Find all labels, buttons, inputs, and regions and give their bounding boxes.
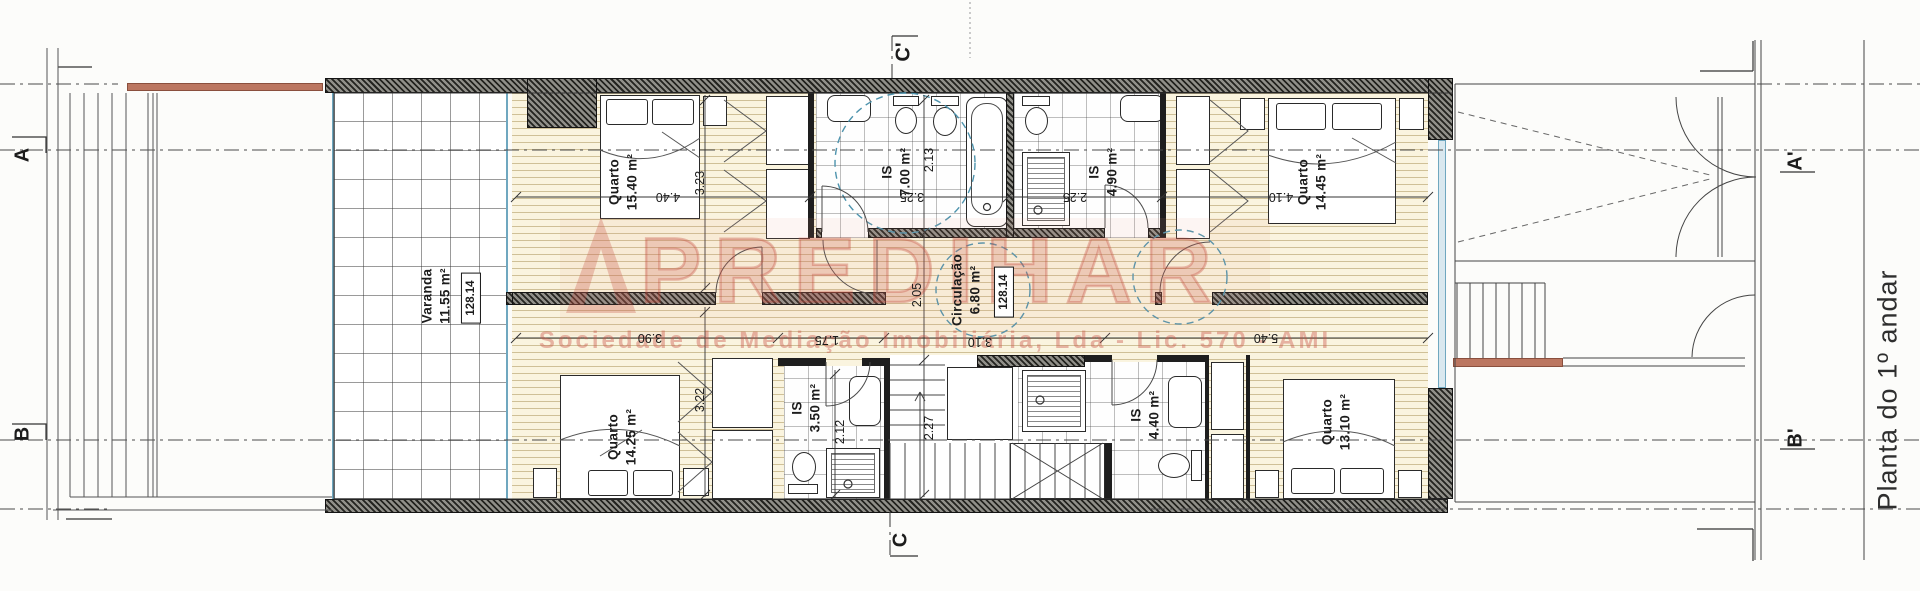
shower <box>1022 370 1086 432</box>
wardrobe <box>1176 169 1210 239</box>
railing-bar <box>1453 358 1563 367</box>
room-area: 14.25 m² <box>623 409 638 465</box>
dim-circulacao-w2: 1.75 <box>815 333 839 347</box>
section-marker-a: A <box>12 148 35 162</box>
washbasin <box>827 95 871 122</box>
wall-partition <box>1085 355 1112 362</box>
room-area: 15.40 m² <box>624 154 639 210</box>
room-label-is-ne: IS 4.90 m² <box>1085 148 1120 197</box>
section-marker-c: C <box>890 533 913 547</box>
dim-stairs-h: 2.27 <box>922 416 936 440</box>
toilet-tank <box>788 484 818 494</box>
nightstand <box>1240 98 1265 130</box>
window-east <box>1438 140 1446 388</box>
dim-circulacao-w: 3.10 <box>968 335 992 349</box>
pillow <box>606 99 648 125</box>
dim-circulacao-h: 2.05 <box>910 283 924 307</box>
bidet-tank <box>893 96 919 106</box>
wall-partition <box>1205 355 1209 499</box>
room-label-quarto-ne: Quarto 14.45 m² <box>1294 154 1329 210</box>
nightstand <box>1398 470 1422 498</box>
dim-quarto-se-w: 5.40 <box>1254 331 1278 345</box>
washbasin <box>1168 376 1202 428</box>
room-name: Circulação <box>949 254 964 326</box>
room-label-circulacao: Circulação 6.80 m² <box>948 254 983 326</box>
wardrobe <box>1176 96 1210 165</box>
room-area: 13.10 m² <box>1337 394 1352 450</box>
pillow <box>1291 468 1335 494</box>
wall-east-lower <box>1428 388 1453 499</box>
dim-quarto-sw-w: 3.90 <box>638 331 662 345</box>
toilet-bowl <box>792 452 816 482</box>
toilet-bowl <box>1025 107 1048 135</box>
wall-north <box>325 78 1453 93</box>
ref-box-circulacao: 128.14 <box>994 266 1014 317</box>
nightstand <box>1399 98 1424 130</box>
room-name: IS <box>1128 408 1143 421</box>
dim-quarto-nw-w: 4.40 <box>656 190 680 204</box>
toilet-bowl <box>933 107 957 136</box>
wardrobe <box>712 358 773 428</box>
toilet-bowl <box>1158 453 1190 478</box>
wardrobe <box>712 430 773 499</box>
wall-mid-east <box>1155 292 1162 305</box>
bidet-bowl <box>895 107 917 134</box>
wall-partition <box>862 358 884 366</box>
room-area: 4.40 m² <box>1146 391 1161 440</box>
toilet-tank <box>1022 96 1050 106</box>
pillow <box>588 470 628 496</box>
wall-partition <box>1160 93 1166 238</box>
room-label-is-sw: IS 3.50 m² <box>788 384 823 433</box>
dim-is-nw-h: 2.13 <box>922 148 936 172</box>
dim-quarto-sw-h: 3.22 <box>693 388 707 412</box>
room-area: 11.55 m² <box>437 268 452 324</box>
section-marker-b: B <box>12 427 35 441</box>
room-area: 14.45 m² <box>1313 154 1328 210</box>
dim-is-nw-w: 3.25 <box>900 190 924 204</box>
section-marker-c-prime: C' <box>893 42 916 61</box>
room-label-varanda: Varanda 11.55 m² <box>418 268 453 324</box>
shower <box>826 448 880 498</box>
cabinet <box>1211 362 1244 430</box>
room-area: 4.90 m² <box>1104 148 1119 197</box>
section-marker-b-prime: B' <box>1785 428 1808 447</box>
dim-quarto-nw-h: 3.23 <box>693 171 707 195</box>
wall-south <box>325 499 1448 513</box>
stair-void <box>1010 443 1105 499</box>
drawing-title: Planta do 1º andar <box>1873 269 1904 510</box>
dim-is-sw-h: 2.12 <box>833 420 847 444</box>
pillow <box>1276 103 1326 130</box>
washbasin <box>1120 95 1164 122</box>
room-name: IS <box>879 165 894 178</box>
wall-bath-south <box>816 228 822 238</box>
wall-mid-west <box>512 292 716 305</box>
dim-is-ne-w: 2.25 <box>1063 190 1087 204</box>
toilet-tank <box>931 96 959 106</box>
wardrobe <box>766 96 810 165</box>
room-name: Quarto <box>1319 399 1334 445</box>
stair-closet <box>947 367 1013 440</box>
room-area: 3.50 m² <box>807 384 822 433</box>
room-name: Varanda <box>419 269 434 324</box>
wall-partition <box>884 358 890 499</box>
wall-partition <box>977 355 1085 367</box>
room-label-is-se: IS 4.40 m² <box>1127 391 1162 440</box>
wardrobe <box>766 169 810 239</box>
wall-partition <box>1157 355 1205 362</box>
railing-bar <box>127 83 323 91</box>
room-name: IS <box>1086 165 1101 178</box>
wall-east-upper <box>1428 78 1453 140</box>
pillow <box>1332 103 1382 130</box>
toilet-tank <box>1191 450 1202 481</box>
pillow <box>633 470 673 496</box>
floor-plan-canvas: PREDIHAR Sociedade de Mediação Imobiliár… <box>0 0 1920 591</box>
wall-partition <box>1105 443 1112 499</box>
pillow <box>1340 468 1384 494</box>
dim-quarto-ne-w: 4.10 <box>1269 190 1293 204</box>
section-marker-a-prime: A' <box>1785 151 1808 170</box>
room-label-quarto-nw: Quarto 15.40 m² <box>605 154 640 210</box>
ref-box-varanda: 128.14 <box>461 272 481 323</box>
wall-mid-west <box>762 292 886 305</box>
wall-partition <box>778 358 826 366</box>
wall-partition <box>808 93 814 238</box>
nightstand <box>683 468 709 496</box>
wall-partition <box>1246 355 1250 499</box>
cabinet <box>1211 434 1244 499</box>
nightstand <box>1255 470 1279 498</box>
room-name: Quarto <box>606 159 621 205</box>
shower <box>1022 152 1070 226</box>
room-label-quarto-sw: Quarto 14.25 m² <box>604 409 639 465</box>
room-name: Quarto <box>1295 159 1310 205</box>
wall-mid-east <box>1212 292 1428 305</box>
wall-partition <box>1006 93 1014 238</box>
wall-bath-south <box>868 228 1105 238</box>
room-name: Quarto <box>605 414 620 460</box>
pillow <box>652 99 694 125</box>
bathtub-inner <box>971 103 1003 215</box>
room-name: IS <box>789 401 804 414</box>
nightstand <box>703 96 727 126</box>
wall-pier <box>527 78 597 128</box>
washbasin <box>849 376 881 426</box>
room-label-quarto-se: Quarto 13.10 m² <box>1318 394 1353 450</box>
room-area: 6.80 m² <box>967 266 982 315</box>
nightstand <box>533 468 557 498</box>
